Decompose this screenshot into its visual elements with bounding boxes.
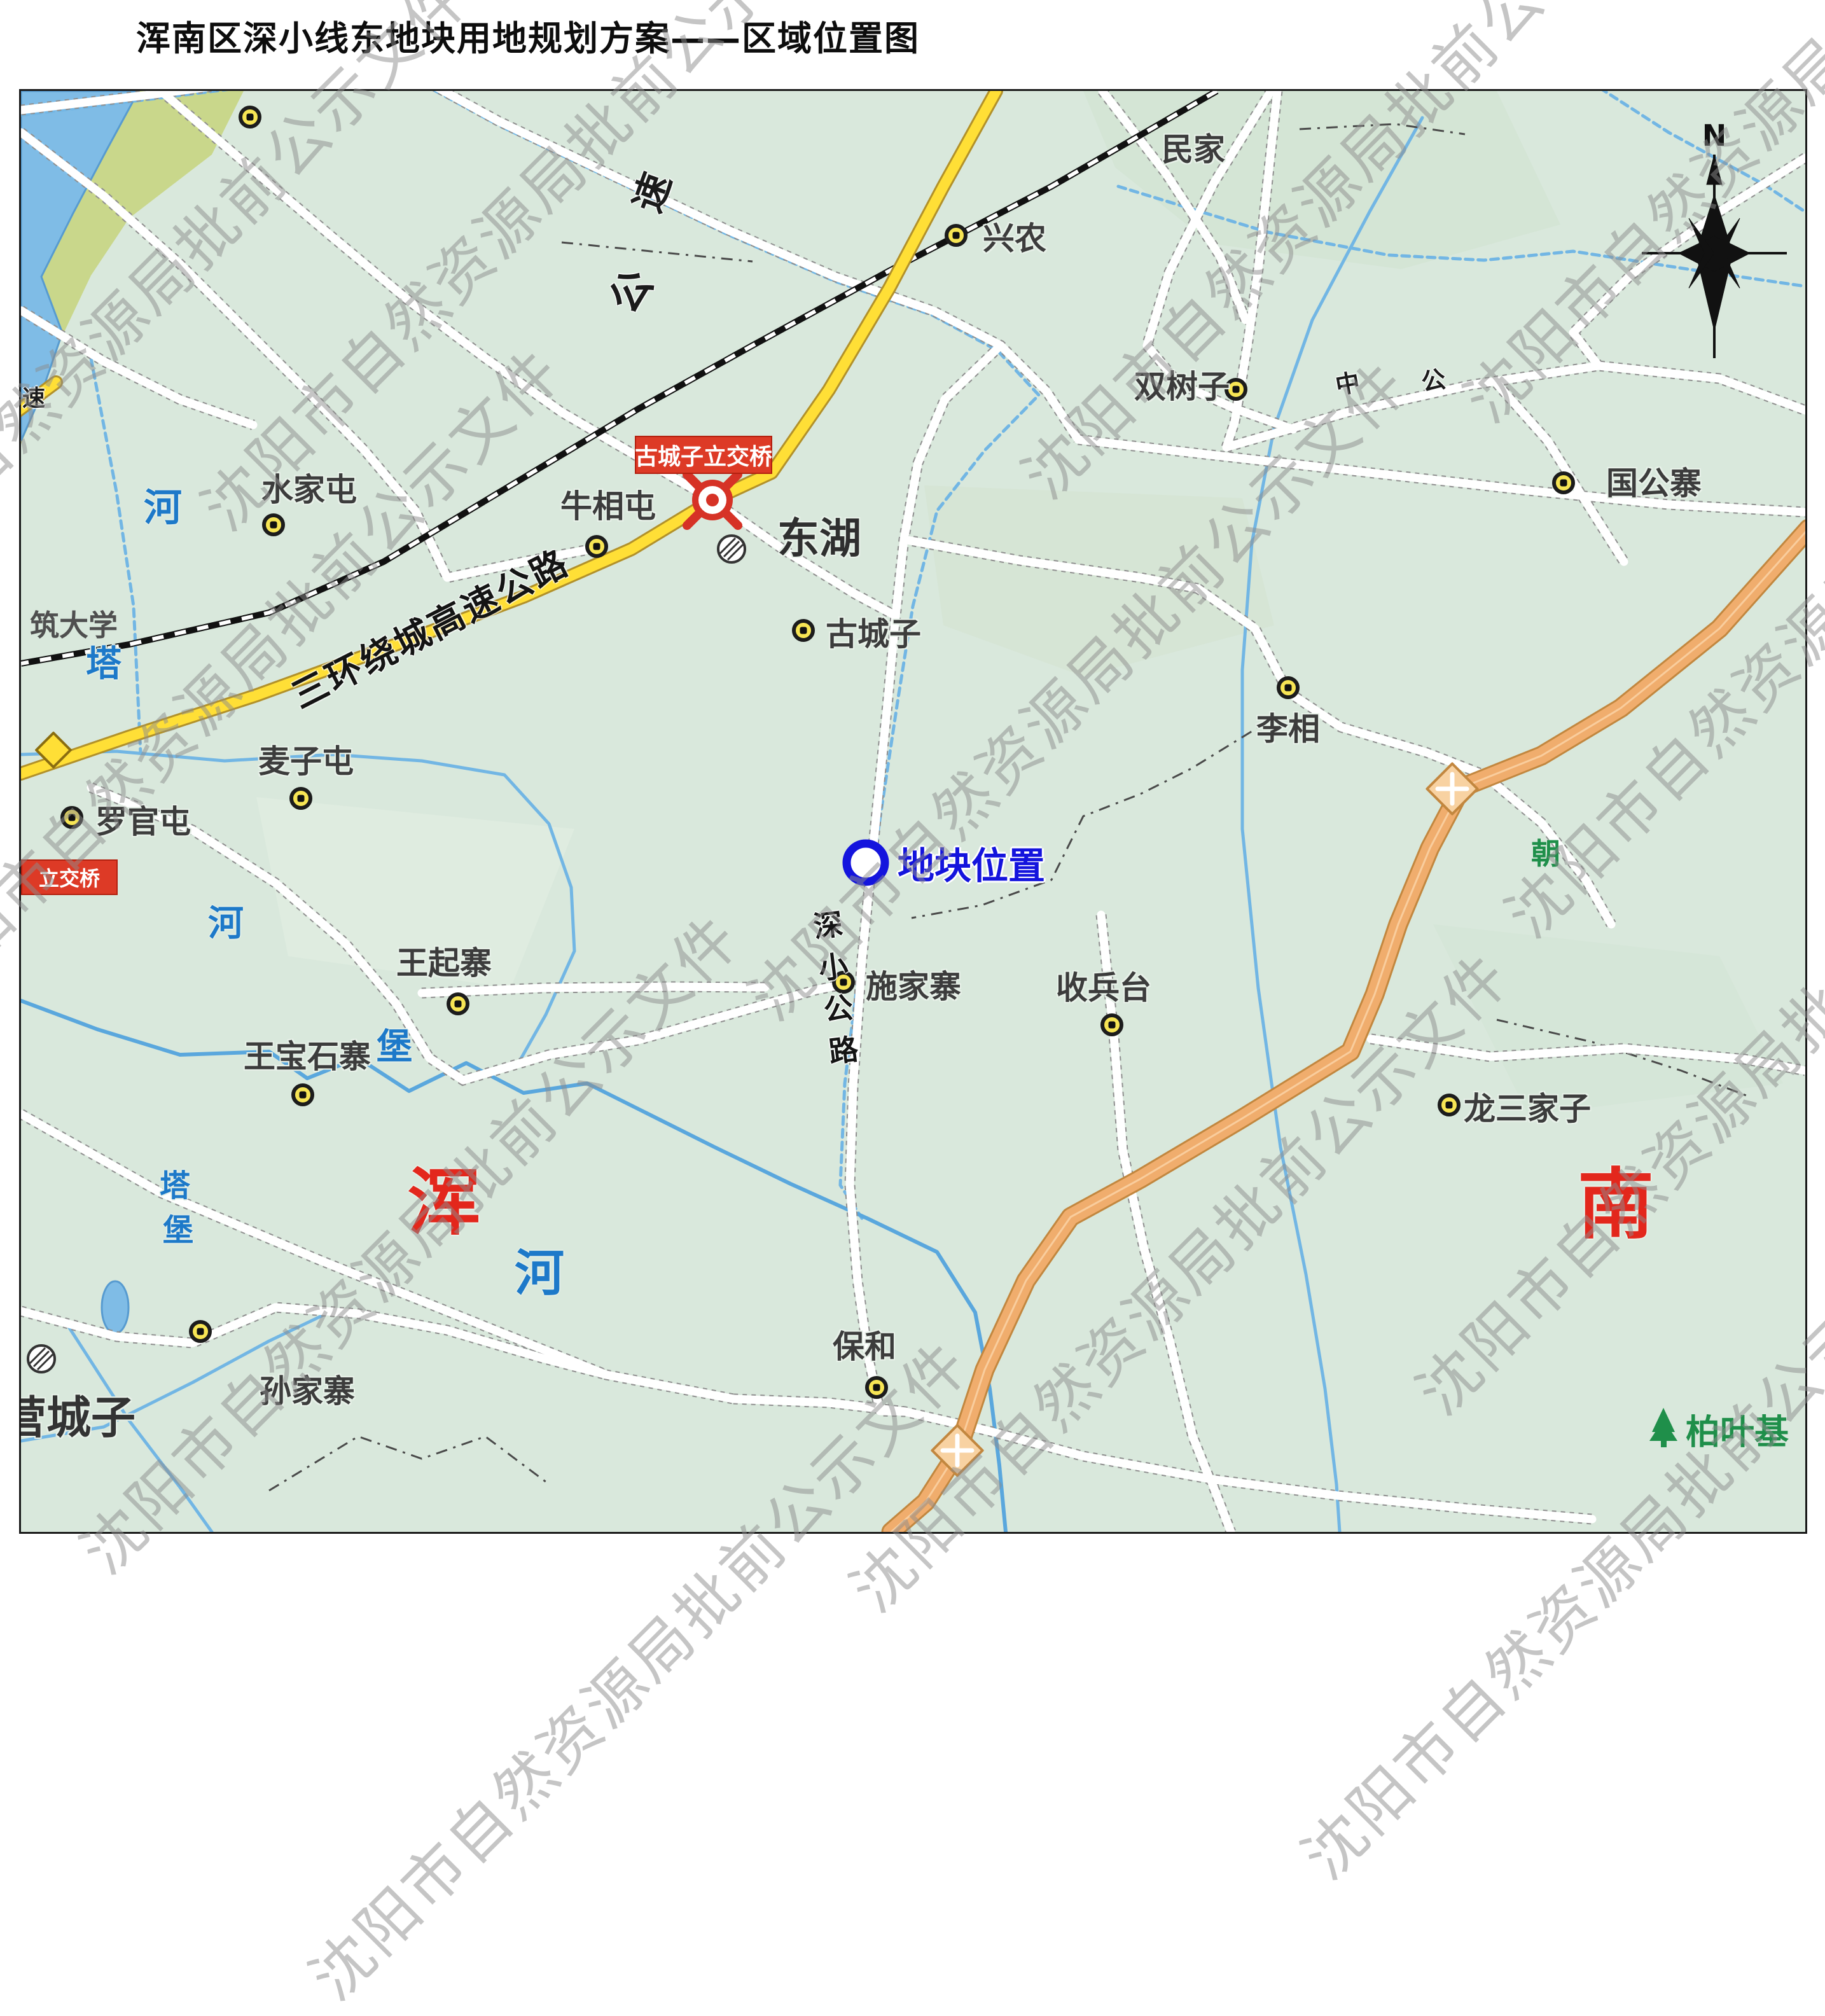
label-university: 筑大学 — [30, 602, 118, 644]
place-label-guogongzhai: 国公寨 — [1606, 458, 1702, 504]
village-dot-icon — [1438, 1094, 1461, 1116]
village-dot-icon — [1100, 1013, 1123, 1036]
village-dot-icon — [60, 806, 83, 829]
village-dot-icon — [239, 106, 261, 129]
village-dot-icon — [1552, 471, 1575, 494]
place-label-minjia: 民家 — [1162, 124, 1225, 170]
guchengzi-interchange-label: 古城子立交桥 — [635, 436, 772, 474]
district-char-nan: 南 — [1578, 1143, 1654, 1253]
place-label-guchengzi: 古城子 — [826, 609, 921, 655]
compass-north-label: N — [1702, 118, 1727, 153]
green-label-baiyeji: 柏叶基 — [1686, 1404, 1789, 1454]
river-char: 堡 — [163, 1205, 193, 1249]
yellow-expressway — [19, 91, 996, 774]
map-graphics — [19, 89, 1807, 1534]
village-dot-icon — [865, 1376, 888, 1399]
village-dot-icon — [189, 1320, 212, 1343]
shenxiao-char: 小 — [815, 944, 852, 990]
place-label-wangbaoshizhai: 王宝石寨 — [244, 1031, 371, 1077]
shenxiao-char: 公 — [820, 986, 857, 1032]
place-label-longsanjiazi: 龙三家子 — [1464, 1083, 1591, 1129]
left-edge-interchange-label: 立交桥 — [21, 859, 118, 895]
green-label-chao: 朝 — [1531, 831, 1560, 873]
area-label-donghu: 东湖 — [777, 504, 861, 566]
river-char: 河 — [144, 477, 182, 532]
map-canvas: 民家 兴农 双树子 国公寨 水家屯 牛相屯 古城子 李相 麦子屯 罗官屯 王起寨… — [19, 89, 1807, 1534]
plot-location-marker — [847, 844, 885, 882]
village-dot-icon — [291, 1083, 314, 1106]
place-label-niuxiangtun: 牛相屯 — [560, 481, 656, 527]
village-dot-icon — [792, 619, 815, 642]
page-title: 浑南区深小线东地块用地规划方案——区域位置图 — [136, 10, 920, 60]
district-char-hun: 浑 — [407, 1144, 480, 1249]
place-label-wangqizhai: 王起寨 — [396, 938, 492, 984]
place-label-luoguantun: 罗官屯 — [95, 796, 191, 842]
place-label-lixiang: 李相 — [1256, 704, 1320, 749]
village-dot-icon — [447, 992, 469, 1015]
edge-expressway-char: 速 — [22, 380, 45, 413]
map-page: 浑南区深小线东地块用地规划方案——区域位置图 — [0, 0, 1825, 1559]
village-dot-icon — [1277, 676, 1300, 699]
plot-location-label: 地块位置 — [898, 836, 1045, 889]
village-dot-icon — [289, 787, 312, 810]
river-char: 塔 — [160, 1160, 190, 1205]
village-dot-icon — [945, 224, 968, 247]
place-label-sunjiazhai: 孙家寨 — [260, 1366, 355, 1412]
place-label-baohe: 保和 — [833, 1321, 896, 1367]
guchengzi-interchange-icon — [687, 475, 738, 525]
area-label-yingchengzi: 营城子 — [19, 1382, 135, 1447]
river-char: 堡 — [377, 1018, 412, 1070]
village-dot-icon — [585, 535, 608, 558]
place-label-xingnong: 兴农 — [983, 213, 1046, 259]
place-label-maizitun: 麦子屯 — [258, 736, 354, 782]
place-label-shuijiatun: 水家屯 — [261, 464, 357, 510]
tree-icon — [1649, 1408, 1677, 1447]
river-char: 河 — [515, 1234, 564, 1305]
place-label-shijiazhai: 施家寨 — [866, 961, 961, 1007]
village-dot-icon — [262, 513, 285, 536]
place-label-shuangshuzi: 双树子 — [1134, 361, 1230, 407]
shenxiao-char: 路 — [825, 1027, 862, 1073]
map-frame: 民家 兴农 双树子 国公寨 水家屯 牛相屯 古城子 李相 麦子屯 罗官屯 王起寨… — [19, 89, 1807, 1534]
shenxiao-char: 深 — [810, 903, 847, 949]
river-char: 河 — [208, 895, 244, 947]
place-label-shoubingtai: 收兵台 — [1056, 963, 1151, 1008]
